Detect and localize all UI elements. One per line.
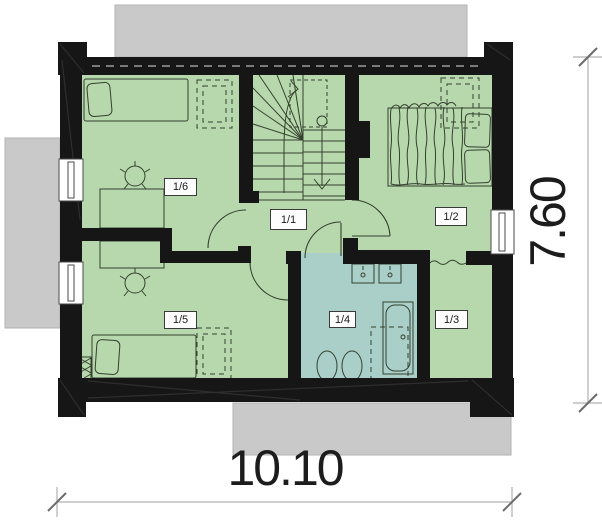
floor-plan-page: 1/1 1/2 1/3 1/4 1/5 1/6 10.10 7.60 [0,0,602,520]
stair-wall-right [345,75,359,200]
dimension-depth-text: 7.60 [523,102,579,342]
room-label-1-4: 1/4 [329,311,356,328]
dimension-width-text: 10.10 [165,443,405,499]
room-label-1-2: 1/2 [435,207,467,226]
bathroom-right-wall [417,252,430,380]
stair-wall-left [239,75,253,203]
window-left-lower [59,262,83,304]
room-label-1-6: 1/6 [164,178,197,196]
room-label-1-3: 1/3 [435,310,468,329]
bathroom-floor-area [296,253,424,380]
bathroom-left-wall [288,252,301,380]
window-right [491,210,514,254]
room-label-1-1: 1/1 [270,209,307,230]
window-left-upper [59,159,83,201]
roof-block-top [115,5,467,57]
room-label-1-5: 1/5 [164,311,197,329]
roof-block-left [5,138,60,328]
